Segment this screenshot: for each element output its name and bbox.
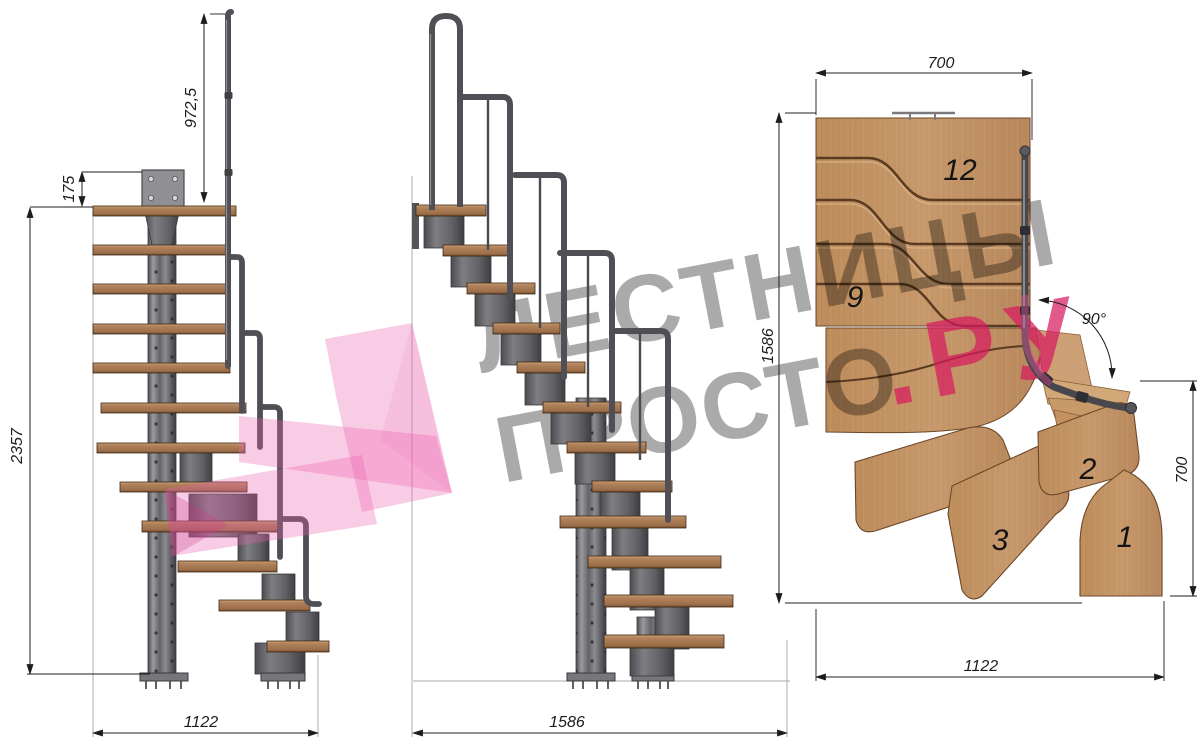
svg-text:3: 3 [992, 524, 1009, 557]
svg-text:175: 175 [61, 176, 78, 203]
svg-text:1586: 1586 [549, 714, 585, 731]
svg-text:1586: 1586 [760, 328, 777, 364]
svg-text:12: 12 [943, 154, 977, 187]
svg-text:1122: 1122 [184, 714, 219, 731]
svg-text:2357: 2357 [9, 427, 26, 465]
svg-text:1: 1 [1117, 521, 1134, 554]
svg-text:90°: 90° [1082, 311, 1107, 328]
svg-text:972,5: 972,5 [183, 88, 200, 128]
svg-text:9: 9 [847, 281, 864, 314]
svg-text:700: 700 [928, 55, 955, 72]
svg-text:2: 2 [1079, 453, 1097, 486]
svg-text:1122: 1122 [964, 658, 999, 675]
svg-text:700: 700 [1174, 457, 1191, 484]
